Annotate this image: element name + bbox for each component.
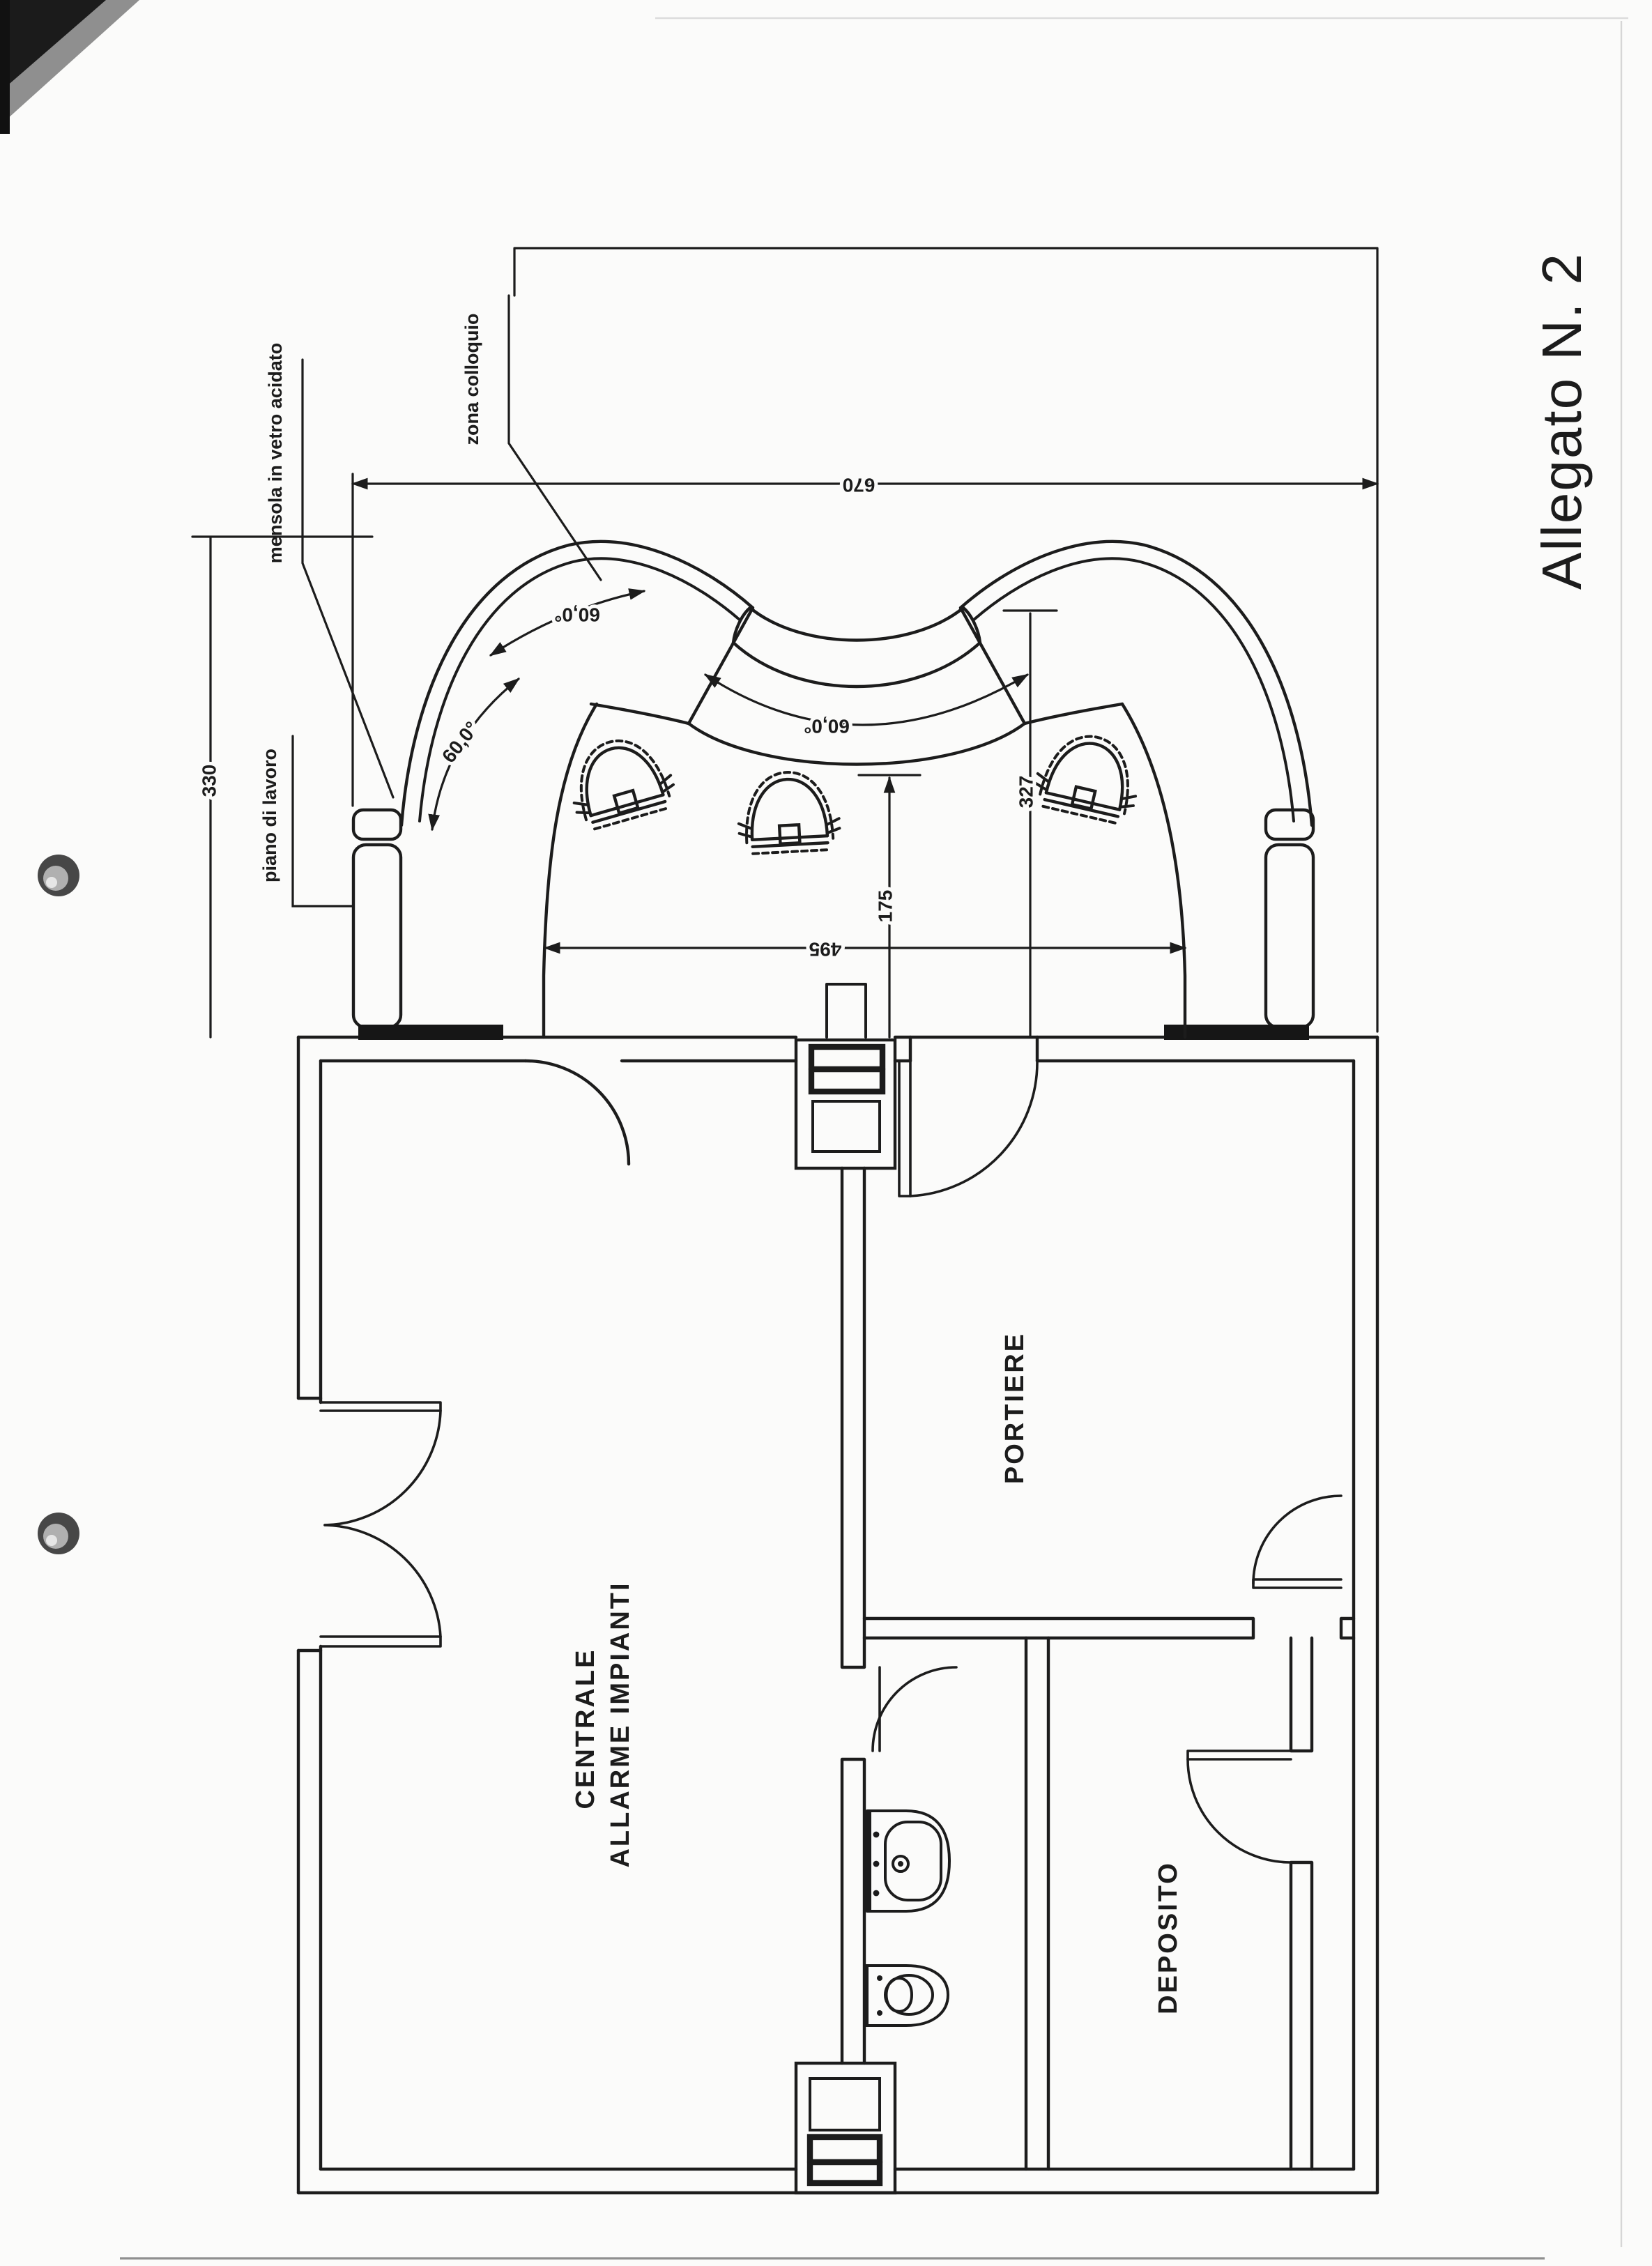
dim-60-center-label: 60,0° [804, 716, 850, 737]
desk-inner-edge-right-wing [1025, 704, 1122, 724]
annotation-zona-leader [509, 296, 601, 580]
floor-plan-svg: Allegato N. 2 [0, 0, 1652, 2266]
wall-spine [842, 1168, 864, 2063]
annotations: mensola in vetro acidato zona colloquio … [259, 296, 601, 906]
annotation-mensola-leader [303, 360, 393, 797]
desk-central-shelf [733, 608, 980, 687]
annotation-mensola: mensola in vetro acidato [265, 343, 286, 564]
chair-right [1031, 726, 1147, 826]
desk-inner-edge-right-arm [1122, 704, 1185, 1037]
dim-495-label: 495 [809, 939, 842, 960]
desk-end-panel-left-top [353, 810, 401, 839]
door-reception-to-portiere [899, 1061, 1037, 1196]
desk-inner-edge-left-wing [591, 704, 689, 724]
desk-mensola-left [420, 558, 740, 821]
dim-327-line [1004, 611, 1057, 1037]
room-label-portiere: PORTIERE [1000, 1332, 1030, 1484]
dim-330-label: 330 [198, 765, 220, 797]
room-label-centrale-line1: CENTRALE [571, 1648, 600, 1809]
chairs [560, 726, 1146, 855]
dim-60-center-arc [705, 675, 1027, 725]
wall-left-jambs [298, 1398, 321, 1651]
bathroom-fixtures [864, 1811, 949, 2026]
desk-end-panel-right-top [1266, 810, 1313, 839]
hole-punch-bottom [38, 1513, 79, 1554]
scanned-floor-plan-page: Allegato N. 2 [0, 0, 1652, 2266]
building-walls [298, 1037, 1377, 2193]
annotation-zona: zona colloquio [461, 314, 482, 445]
dim-175-label: 175 [874, 890, 896, 923]
reception-desk [353, 542, 1313, 1040]
dim-670-label: 670 [843, 475, 875, 496]
desk-end-panel-right [1266, 845, 1313, 1027]
dimensions: 670 330 327 175 495 60,0° 60,0° 60,0° [192, 248, 1377, 1037]
dim-60-wing-label: 60,0° [554, 604, 600, 626]
wall-bathroom-deposito [1026, 1638, 1048, 2169]
door-bathroom [873, 1667, 956, 1751]
desk-inner-edge-saddle [689, 724, 1025, 765]
chair-center [736, 770, 841, 854]
curved-partition-left [526, 1061, 629, 1164]
dim-60-outer-label: 60,0° [438, 717, 483, 767]
desk-base-plate-left [358, 1025, 503, 1040]
desk-outer-edge-left [401, 542, 753, 825]
annotation-piano: piano di lavoro [259, 749, 280, 882]
sink [864, 1811, 949, 1911]
reference-lines [514, 248, 1377, 1032]
annotation-piano-leader [293, 736, 353, 906]
room-label-deposito: DEPOSITO [1154, 1861, 1183, 2014]
wall-portiere-south [864, 1618, 1354, 1638]
door-deposito [1188, 1751, 1291, 1862]
page-title: Allegato N. 2 [1531, 252, 1593, 590]
wall-deposito-east [1291, 1638, 1312, 2169]
desk-stub-partition [827, 984, 866, 1037]
hole-punch-top [38, 855, 79, 896]
room-label-centrale-line2: ALLARME IMPIANTI [606, 1581, 635, 1867]
door-portiere [1253, 1496, 1341, 1588]
service-module-bottom [796, 2063, 895, 2193]
dim-327-label: 327 [1015, 776, 1037, 809]
wall-top-jambs [910, 1037, 1037, 1061]
toilet [867, 1966, 948, 2026]
desk-inner-edge-left-arm [544, 704, 597, 1037]
corner-fold-black [0, 0, 106, 92]
doors [321, 1061, 1341, 1862]
corner-edge-sliver [0, 0, 10, 134]
desk-end-panel-left [353, 845, 401, 1027]
service-module-top [796, 984, 895, 1168]
double-door-left-wall [321, 1402, 441, 1646]
